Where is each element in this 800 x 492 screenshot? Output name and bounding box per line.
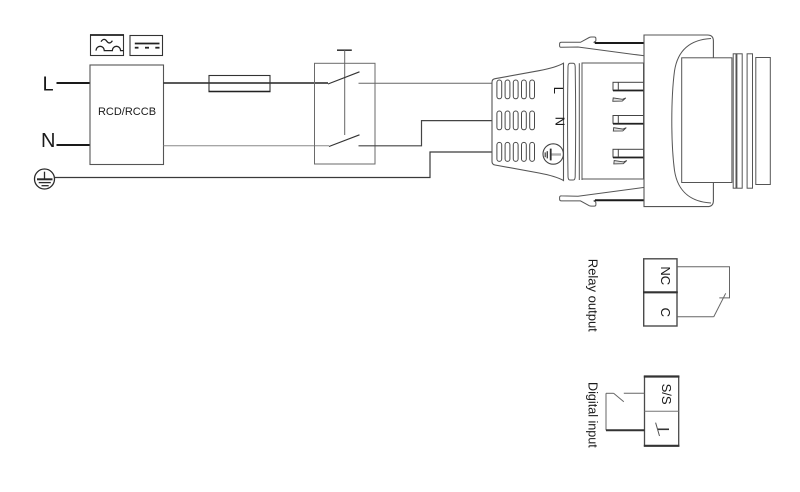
svg-text:N: N <box>553 117 568 126</box>
svg-text:NC: NC <box>658 266 673 285</box>
svg-text:Digital input: Digital input <box>586 382 600 448</box>
svg-text:Relay output: Relay output <box>586 259 601 332</box>
svg-text:L: L <box>551 87 566 94</box>
svg-text:N: N <box>41 130 55 152</box>
svg-text:S/S: S/S <box>659 384 674 405</box>
svg-text:L: L <box>43 74 54 96</box>
svg-text:RCD/RCCB: RCD/RCCB <box>98 106 156 118</box>
svg-text:C: C <box>658 308 673 317</box>
